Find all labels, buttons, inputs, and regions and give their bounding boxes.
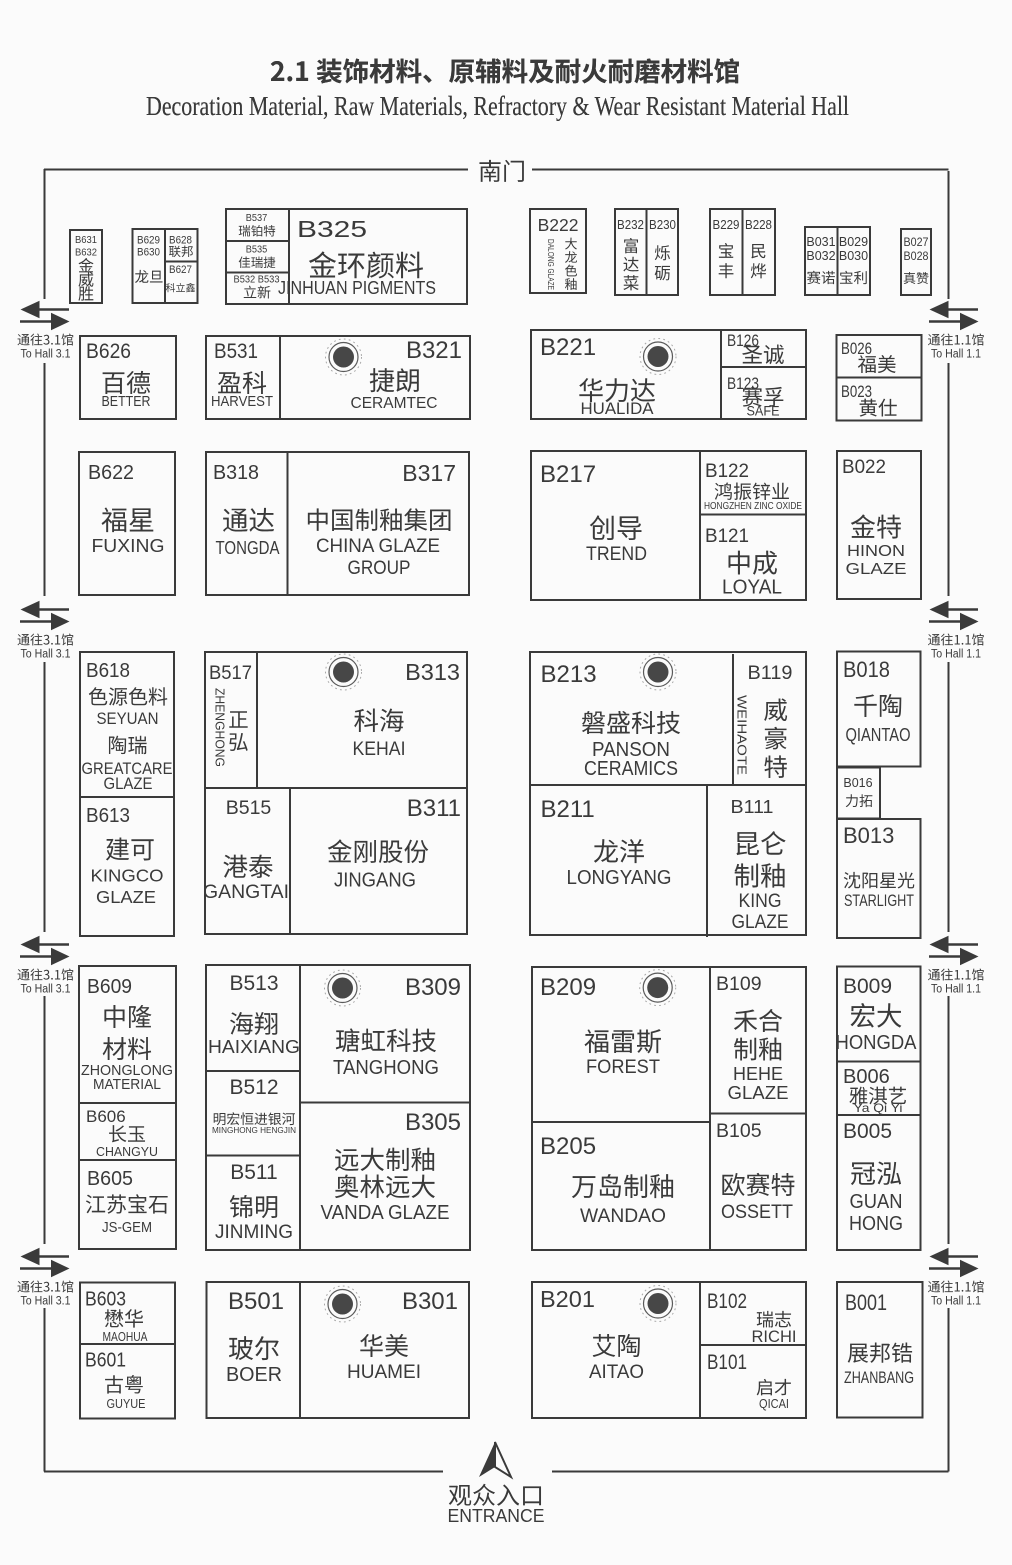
svg-text:B609: B609 [87, 976, 132, 998]
svg-text:B317: B317 [402, 460, 456, 486]
svg-text:B027: B027 [904, 237, 929, 249]
svg-text:MAOHUA: MAOHUA [103, 1330, 149, 1344]
svg-text:CERAMTEC: CERAMTEC [351, 395, 438, 412]
svg-text:Decoration Material, Raw Mater: Decoration Material, Raw Materials, Refr… [146, 91, 849, 121]
svg-text:GLAZE: GLAZE [732, 912, 789, 933]
svg-text:JINHUAN PIGMENTS: JINHUAN PIGMENTS [278, 278, 436, 298]
svg-text:JS-GEM: JS-GEM [102, 1219, 152, 1236]
svg-text:B622: B622 [88, 462, 134, 484]
svg-text:B213: B213 [541, 661, 597, 688]
svg-text:B605: B605 [87, 1167, 133, 1190]
svg-text:B029: B029 [839, 235, 868, 249]
svg-text:To Hall 3.1: To Hall 3.1 [21, 1296, 71, 1308]
svg-text:KEHAI: KEHAI [353, 738, 406, 760]
svg-text:To Hall 1.1: To Hall 1.1 [931, 1296, 981, 1308]
svg-text:B629: B629 [137, 235, 160, 247]
svg-text:B018: B018 [843, 657, 890, 682]
svg-text:BETTER: BETTER [102, 393, 151, 410]
svg-text:B325: B325 [297, 216, 367, 242]
svg-text:GLAZE: GLAZE [104, 775, 153, 793]
svg-text:B626: B626 [86, 340, 131, 363]
svg-text:B631: B631 [75, 234, 97, 246]
svg-text:HONGDA: HONGDA [836, 1031, 917, 1054]
svg-text:To Hall 1.1: To Hall 1.1 [931, 649, 981, 661]
svg-text:KING: KING [739, 891, 782, 912]
svg-text:B512: B512 [229, 1076, 278, 1099]
svg-text:GUAN: GUAN [850, 1191, 903, 1213]
svg-text:FUXING: FUXING [92, 535, 165, 556]
svg-text:B511: B511 [230, 1161, 278, 1184]
svg-text:B515: B515 [226, 797, 272, 819]
svg-text:To Hall 3.1: To Hall 3.1 [21, 349, 71, 361]
svg-text:B501: B501 [228, 1288, 284, 1315]
svg-text:SAFE: SAFE [747, 404, 780, 419]
svg-text:To Hall 1.1: To Hall 1.1 [931, 349, 981, 361]
svg-text:B221: B221 [540, 334, 596, 361]
svg-text:TREND: TREND [586, 543, 647, 565]
svg-text:ZHENGHONG: ZHENGHONG [213, 688, 228, 767]
svg-text:B531: B531 [214, 340, 258, 363]
svg-text:B232: B232 [617, 217, 644, 232]
svg-text:DALONG GLAZE: DALONG GLAZE [546, 239, 555, 290]
svg-text:To Hall 3.1: To Hall 3.1 [21, 649, 71, 661]
svg-text:B627: B627 [169, 264, 192, 276]
svg-text:JINMING: JINMING [215, 1221, 293, 1243]
svg-text:B305: B305 [405, 1109, 461, 1136]
svg-text:CERAMICS: CERAMICS [584, 758, 678, 780]
svg-text:WEIHAOTE: WEIHAOTE [735, 695, 750, 775]
svg-text:HARVEST: HARVEST [211, 393, 273, 410]
svg-text:B026: B026 [841, 339, 872, 358]
svg-text:B601: B601 [85, 1350, 126, 1372]
svg-text:B030: B030 [839, 249, 868, 263]
svg-text:GLAZE: GLAZE [96, 887, 156, 907]
svg-text:STARLIGHT: STARLIGHT [844, 891, 914, 910]
svg-text:B217: B217 [540, 461, 596, 488]
svg-text:B211: B211 [541, 796, 595, 823]
svg-text:To Hall 1.1: To Hall 1.1 [931, 984, 981, 996]
svg-text:B006: B006 [843, 1066, 890, 1088]
svg-text:B001: B001 [845, 1290, 887, 1315]
svg-text:TONGDA: TONGDA [216, 538, 280, 558]
svg-text:B222: B222 [538, 215, 579, 235]
svg-text:Ya Qi Yi: Ya Qi Yi [854, 1101, 903, 1115]
svg-text:LOYAL: LOYAL [722, 577, 782, 599]
svg-text:KINGCO: KINGCO [91, 866, 164, 886]
svg-text:B517: B517 [209, 663, 252, 684]
svg-text:GROUP: GROUP [348, 558, 411, 579]
svg-text:B603: B603 [85, 1289, 126, 1311]
svg-text:B009: B009 [843, 975, 892, 998]
svg-text:B321: B321 [406, 337, 462, 364]
svg-text:GUYUE: GUYUE [107, 1397, 146, 1411]
svg-text:TANGHONG: TANGHONG [333, 1057, 439, 1079]
svg-text:B028: B028 [904, 251, 929, 263]
svg-text:CHINA GLAZE: CHINA GLAZE [316, 536, 440, 557]
svg-text:HINON: HINON [847, 543, 905, 560]
svg-text:B618: B618 [86, 660, 130, 682]
svg-text:B205: B205 [540, 1133, 596, 1160]
svg-text:B022: B022 [842, 456, 886, 478]
svg-text:FOREST: FOREST [586, 1056, 660, 1078]
svg-text:BOER: BOER [226, 1364, 282, 1386]
svg-text:MATERIAL: MATERIAL [93, 1077, 161, 1093]
svg-text:B228: B228 [745, 217, 772, 232]
svg-text:B005: B005 [843, 1120, 892, 1143]
svg-text:B230: B230 [649, 217, 676, 232]
svg-text:B102: B102 [707, 1290, 747, 1313]
svg-text:To Hall 3.1: To Hall 3.1 [21, 984, 71, 996]
svg-text:B613: B613 [86, 805, 130, 827]
svg-text:B628: B628 [169, 235, 192, 247]
svg-text:B123: B123 [727, 374, 759, 393]
svg-text:B016: B016 [843, 776, 872, 790]
svg-text:GANGTAI: GANGTAI [203, 881, 289, 903]
svg-text:ZHANBANG: ZHANBANG [844, 1368, 914, 1387]
svg-text:B309: B309 [405, 974, 461, 1001]
svg-text:B109: B109 [716, 973, 762, 995]
svg-text:B513: B513 [229, 972, 278, 995]
svg-text:GLAZE: GLAZE [846, 561, 907, 578]
svg-text:B630: B630 [137, 247, 160, 259]
svg-text:B105: B105 [716, 1120, 762, 1142]
svg-text:ENTRANCE: ENTRANCE [448, 1506, 545, 1526]
svg-text:HONGZHEN ZINC OXIDE: HONGZHEN ZINC OXIDE [704, 500, 802, 512]
svg-text:SEYUAN: SEYUAN [97, 710, 159, 728]
svg-text:B101: B101 [707, 1351, 747, 1374]
svg-text:B032: B032 [806, 249, 835, 263]
svg-text:B606: B606 [86, 1107, 126, 1126]
svg-text:B301: B301 [402, 1288, 458, 1315]
svg-text:RICHI: RICHI [752, 1327, 797, 1346]
svg-text:AITAO: AITAO [589, 1362, 644, 1383]
svg-text:B535: B535 [246, 245, 268, 256]
svg-text:B313: B313 [405, 659, 460, 685]
svg-text:B031: B031 [806, 235, 835, 249]
svg-text:B119: B119 [748, 663, 793, 684]
svg-text:MINGHONG HENGJIN: MINGHONG HENGJIN [212, 1125, 296, 1135]
svg-text:CHANGYU: CHANGYU [96, 1144, 158, 1159]
svg-text:OSSETT: OSSETT [721, 1202, 793, 1223]
svg-text:B537: B537 [246, 213, 268, 224]
svg-text:B122: B122 [705, 461, 749, 482]
svg-text:B111: B111 [731, 796, 774, 817]
svg-text:B209: B209 [540, 974, 596, 1001]
svg-text:B632: B632 [75, 247, 97, 259]
svg-text:HUAMEI: HUAMEI [347, 1361, 421, 1383]
svg-text:QIANTAO: QIANTAO [846, 725, 911, 745]
svg-text:GLAZE: GLAZE [728, 1082, 789, 1103]
svg-text:VANDA GLAZE: VANDA GLAZE [321, 1202, 450, 1224]
svg-text:B311: B311 [407, 795, 461, 822]
svg-text:HAIXIANG: HAIXIANG [208, 1037, 300, 1057]
svg-text:B229: B229 [713, 217, 740, 232]
svg-text:LONGYANG: LONGYANG [567, 867, 672, 889]
svg-text:B023: B023 [841, 382, 872, 401]
svg-text:WANDAO: WANDAO [580, 1206, 666, 1227]
svg-text:HONG: HONG [849, 1213, 903, 1235]
svg-text:B201: B201 [540, 1286, 595, 1312]
svg-text:B121: B121 [705, 526, 749, 547]
svg-text:HEHE: HEHE [733, 1063, 783, 1084]
svg-text:QICAI: QICAI [759, 1397, 789, 1411]
svg-text:B318: B318 [213, 462, 259, 484]
svg-text:HUALIDA: HUALIDA [581, 399, 655, 418]
svg-text:B013: B013 [843, 823, 894, 848]
svg-text:B532 B533: B532 B533 [234, 275, 280, 286]
svg-text:B126: B126 [727, 331, 759, 350]
svg-text:JINGANG: JINGANG [334, 869, 416, 892]
